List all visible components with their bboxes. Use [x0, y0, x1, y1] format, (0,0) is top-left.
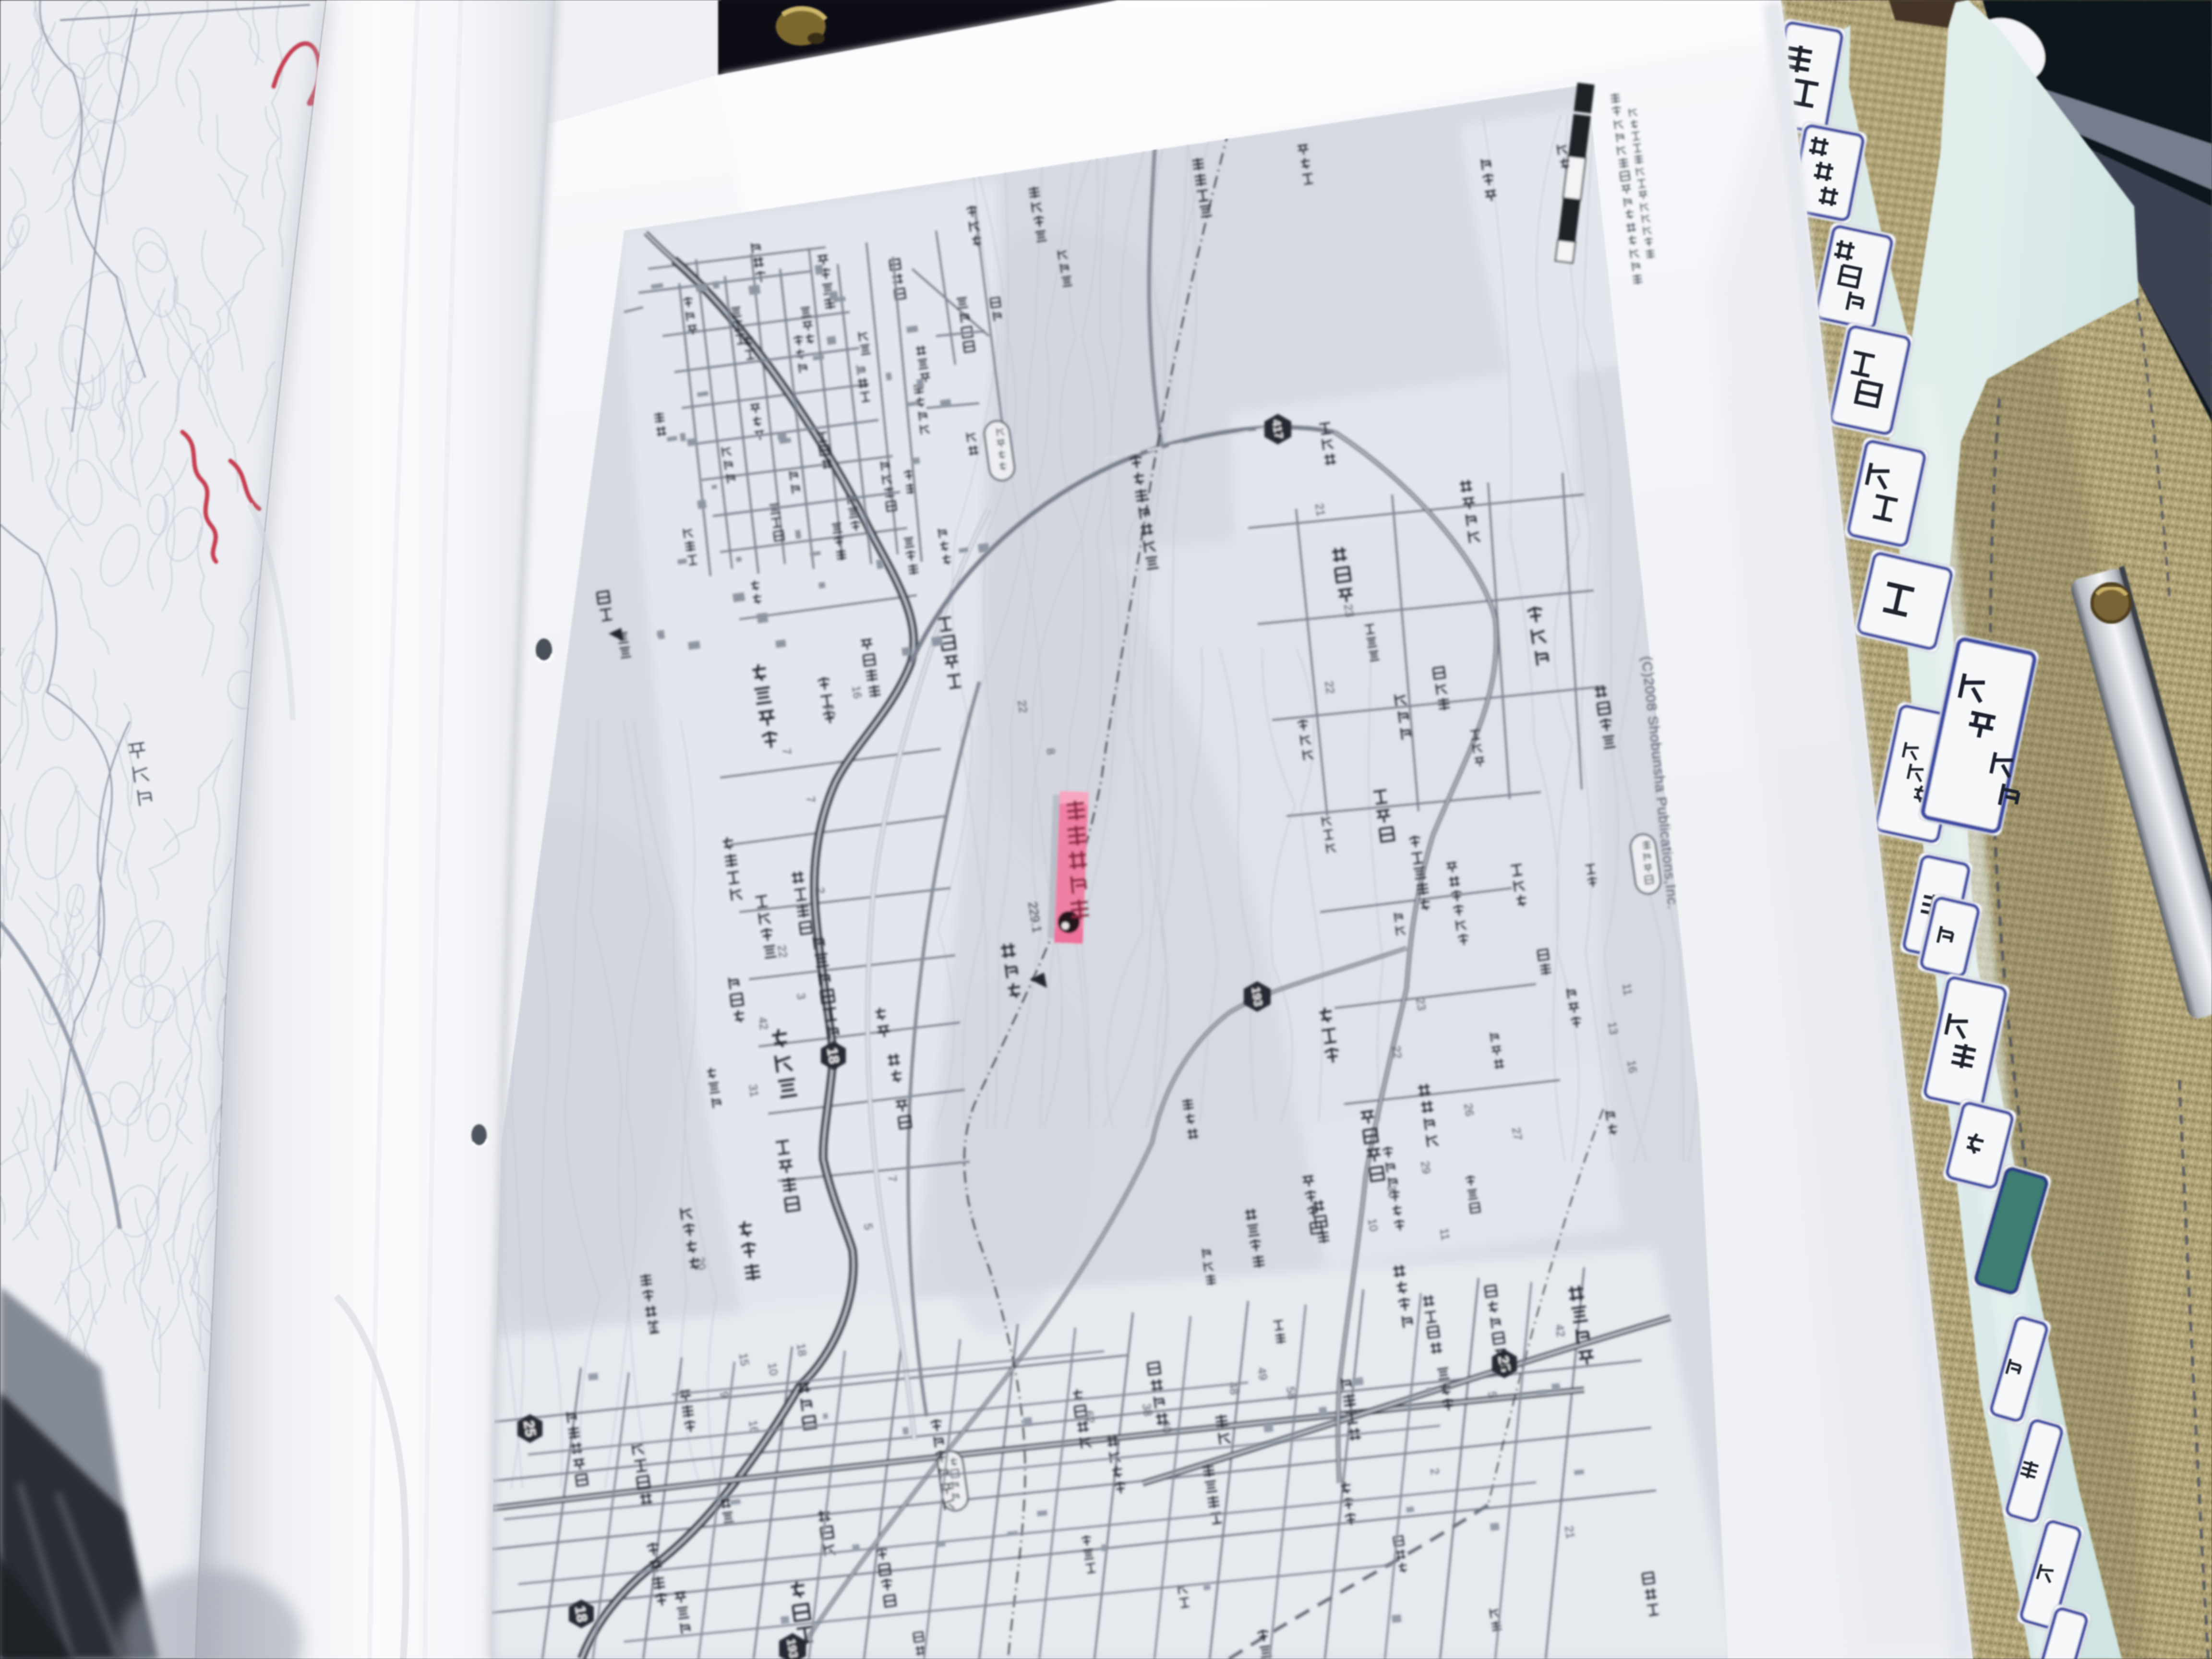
svg-text:15: 15	[737, 1352, 752, 1367]
svg-text:10: 10	[823, 704, 838, 719]
svg-text:18: 18	[794, 1343, 809, 1358]
svg-text:40: 40	[1159, 1419, 1174, 1434]
svg-text:11: 11	[1438, 1227, 1453, 1241]
svg-text:16: 16	[1625, 1059, 1640, 1074]
svg-text:25: 25	[521, 1419, 539, 1438]
svg-text:21: 21	[1313, 503, 1328, 517]
svg-text:22: 22	[1322, 680, 1337, 695]
svg-text:18: 18	[824, 1046, 842, 1065]
svg-text:30: 30	[1385, 1184, 1400, 1199]
svg-text:25: 25	[1495, 1355, 1514, 1373]
svg-text:10: 10	[1366, 1218, 1381, 1233]
svg-text:22: 22	[1015, 699, 1030, 714]
svg-text:20: 20	[694, 1256, 709, 1271]
svg-text:10: 10	[766, 1362, 781, 1377]
svg-text:13: 13	[1606, 1021, 1621, 1036]
svg-text:42: 42	[1553, 1323, 1568, 1338]
svg-text:38: 38	[1140, 1403, 1155, 1418]
svg-text:26: 26	[1462, 1103, 1477, 1118]
svg-text:42: 42	[756, 1016, 771, 1031]
svg-text:49: 49	[1255, 1367, 1270, 1382]
svg-text:23: 23	[1414, 997, 1429, 1012]
svg-text:28: 28	[646, 1319, 661, 1334]
svg-text:22: 22	[775, 944, 790, 959]
svg-text:62: 62	[1082, 1410, 1097, 1425]
svg-text:22: 22	[1390, 1045, 1405, 1060]
svg-text:31: 31	[746, 1083, 761, 1098]
svg-text:21: 21	[1563, 1525, 1577, 1540]
svg-text:11: 11	[1620, 983, 1635, 997]
svg-text:16: 16	[850, 685, 865, 700]
svg-text:23: 23	[1342, 603, 1357, 618]
svg-text:18: 18	[572, 1605, 590, 1623]
svg-text:27: 27	[1510, 1127, 1525, 1142]
svg-text:29: 29	[1419, 1160, 1433, 1175]
